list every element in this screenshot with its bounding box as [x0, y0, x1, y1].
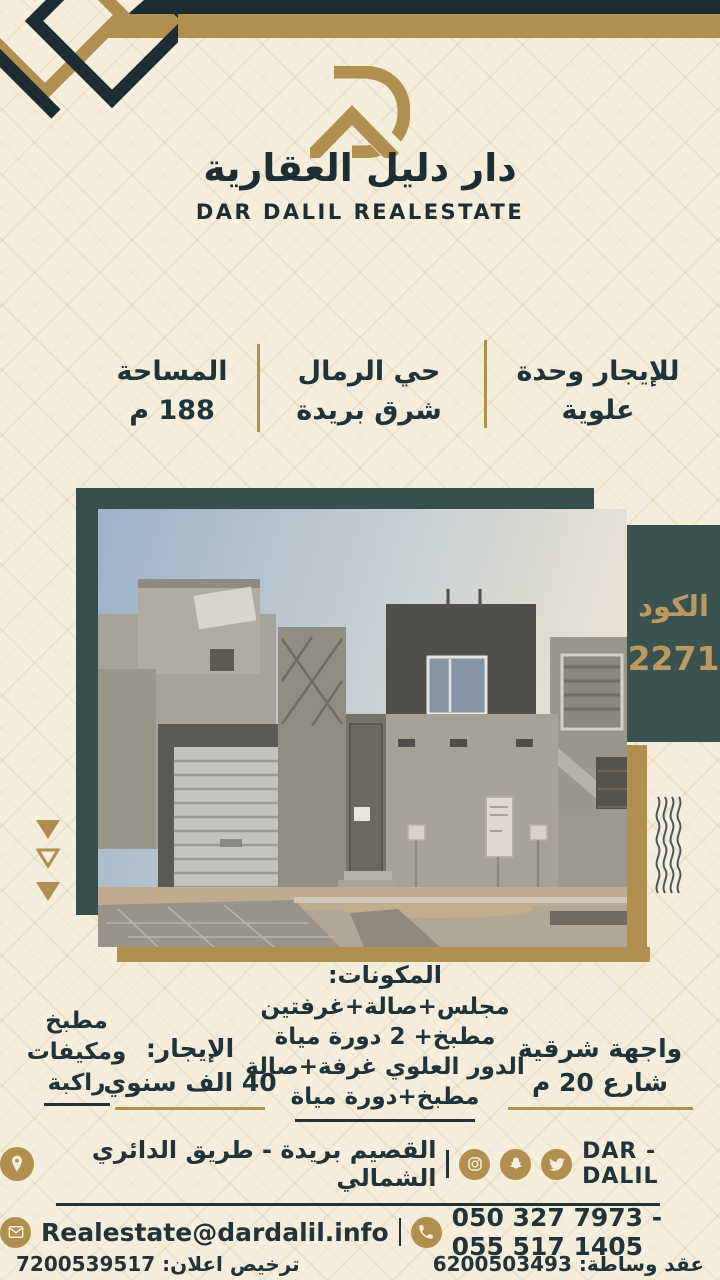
footer-contact-row: Realestate@dardalil.info 050 327 7973 - …	[0, 1212, 720, 1252]
property-photo	[98, 509, 627, 947]
facade-line1: واجهة شرقية	[500, 1032, 700, 1066]
footer-divider	[446, 1150, 449, 1178]
gold-accent-bar	[627, 745, 647, 948]
extras-line1: مطبخ	[14, 1006, 139, 1037]
area-value: 188 م	[96, 391, 248, 430]
info-divider	[484, 340, 487, 428]
underline	[295, 1119, 475, 1122]
area-label: المساحة	[96, 352, 248, 391]
location-pin-icon	[0, 1147, 34, 1181]
underline	[508, 1107, 693, 1110]
underline	[115, 1107, 265, 1110]
triangle-ornament-icon	[35, 820, 61, 904]
footer-address-row: القصيم بريدة - طريق الدائري الشمالي DAR …	[0, 1144, 720, 1184]
extras-block: مطبخ ومكيفات راكبة	[14, 1006, 139, 1106]
location: حي الرمال شرق بريدة	[264, 352, 474, 430]
footer-address: القصيم بريدة - طريق الدائري الشمالي	[44, 1136, 436, 1192]
twitter-icon[interactable]	[541, 1149, 572, 1180]
offer-line2: علوية	[492, 391, 704, 430]
phone-icon[interactable]	[411, 1217, 442, 1248]
email-icon[interactable]	[0, 1217, 31, 1248]
top-navy-bar	[128, 0, 720, 14]
footer-brand: DAR - DALIL	[582, 1139, 720, 1189]
location-line2: شرق بريدة	[264, 391, 474, 430]
snapchat-icon[interactable]	[500, 1149, 531, 1180]
code-value: 2271	[628, 639, 720, 678]
location-line1: حي الرمال	[264, 352, 474, 391]
extras-line3: راكبة	[14, 1068, 139, 1099]
brand-logo-icon	[310, 66, 410, 158]
info-divider	[257, 344, 260, 432]
facade-block: واجهة شرقية شارع 20 م	[500, 1032, 700, 1110]
footer-email[interactable]: Realestate@dardalil.info	[41, 1218, 389, 1247]
instagram-icon[interactable]	[459, 1149, 490, 1180]
footer-divider	[399, 1218, 401, 1246]
underline	[44, 1103, 110, 1106]
extras-line2: ومكيفات	[14, 1037, 139, 1068]
facade-line2: شارع 20 م	[500, 1066, 700, 1100]
offer-line1: للإيجار وحدة	[492, 352, 704, 391]
top-gold-bar	[102, 14, 720, 38]
offer-type: للإيجار وحدة علوية	[492, 352, 704, 430]
corner-ornament-icon	[0, 0, 178, 122]
brand-name-arabic: دار دليل العقارية	[0, 146, 720, 190]
wave-ornament-icon	[655, 795, 683, 895]
components-line: مجلس+صالة+غرفتين	[210, 992, 560, 1022]
flyer-canvas: دار دليل العقارية DAR DALIL REALESTATE ل…	[0, 0, 720, 1280]
area: المساحة 188 م	[96, 352, 248, 430]
brand-name-english: DAR DALIL REALESTATE	[0, 200, 720, 224]
code-label: الكود	[638, 589, 709, 623]
components-title: المكونات:	[210, 960, 560, 990]
brokerage-contract-number: عقد وساطة: 6200503493	[433, 1252, 704, 1276]
property-code-badge: الكود 2271	[627, 525, 720, 742]
ad-license-number: ترخيص اعلان: 7200539517	[16, 1252, 300, 1276]
